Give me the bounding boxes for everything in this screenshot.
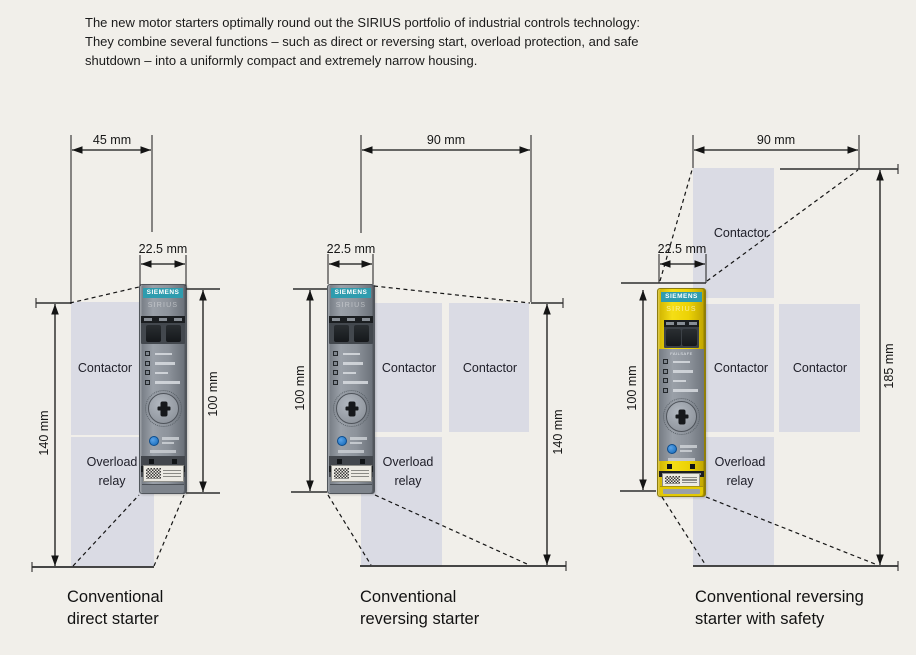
led-indicator: [663, 359, 668, 364]
reset-caption-mark: [680, 445, 697, 448]
terminal-connectors: [143, 325, 183, 342]
led-caption-mark: [673, 389, 698, 392]
caption-line1: Conventional reversing: [695, 586, 864, 608]
led-indicator: [333, 370, 338, 375]
product-label: [331, 465, 372, 482]
caption-line1: Conventional: [360, 586, 479, 608]
terminal-screw: [149, 459, 154, 464]
series-label: SIRIUS: [658, 306, 705, 313]
caption-line2: direct starter: [67, 608, 163, 630]
overload-label-line1: Overload: [383, 453, 434, 472]
led-indicator: [145, 351, 150, 356]
led-indicator: [333, 351, 338, 356]
intro-paragraph: The new motor starters optimally round o…: [85, 13, 640, 70]
datamatrix-code: [665, 476, 680, 484]
led-caption-mark: [343, 362, 363, 365]
overload-relay-label: Overload relay: [715, 453, 766, 491]
led-caption-mark: [155, 381, 180, 384]
caption-direct-starter: Conventional direct starter: [67, 586, 163, 630]
led-caption-mark: [155, 353, 172, 356]
reset-caption-mark: [350, 442, 362, 445]
contactor-label: Contactor: [714, 226, 768, 240]
contactor-label: Contactor: [382, 361, 436, 375]
bottom-flap: [660, 486, 703, 496]
overload-relay-label: Overload relay: [383, 453, 434, 491]
led-caption-mark: [673, 361, 690, 364]
dimension-outer-width: 90 mm: [757, 133, 795, 147]
led-caption-mark: [343, 381, 368, 384]
series-label: SIRIUS: [328, 302, 374, 309]
dimension-outer-height: 140 mm: [37, 410, 51, 455]
rotary-dial: [148, 393, 179, 424]
siemens-logo: SIEMENS: [143, 288, 183, 298]
contactor-label: Contactor: [714, 361, 768, 375]
label-text-marks: [682, 476, 697, 484]
led-indicator: [145, 380, 150, 385]
led-caption-mark: [155, 372, 168, 375]
siemens-logo: SIEMENS: [331, 288, 371, 298]
dimension-outer-height: 140 mm: [551, 409, 565, 454]
dimension-device-width: 22.5 mm: [327, 242, 376, 256]
dial-knob: [678, 409, 685, 424]
overload-relay-label: Overload relay: [87, 453, 138, 491]
terminal-screw: [667, 464, 672, 469]
motor-starter-device-safety: SIEMENSSIRIUSFAILSAFE: [657, 288, 706, 497]
led-indicator: [333, 361, 338, 366]
siemens-logo: SIEMENS: [661, 292, 702, 302]
caption-line2: starter with safety: [695, 608, 864, 630]
overload-label-line2: relay: [383, 472, 434, 491]
caption-line1: Conventional: [67, 586, 163, 608]
led-indicator: [145, 361, 150, 366]
reset-caption-mark: [350, 437, 367, 440]
terminal-connectors: [331, 325, 371, 342]
dimension-outer-width: 90 mm: [427, 133, 465, 147]
overload-label-line1: Overload: [87, 453, 138, 472]
failsafe-marking: FAILSAFE: [658, 351, 705, 356]
terminal-screw: [690, 464, 695, 469]
led-caption-mark: [673, 380, 686, 383]
status-leds: [663, 359, 701, 397]
led-caption-mark: [343, 372, 356, 375]
overload-label-line2: relay: [87, 472, 138, 491]
terminal-slots: [329, 316, 373, 323]
overload-label-line2: relay: [715, 472, 766, 491]
status-leds: [333, 351, 370, 389]
rating-text-mark: [338, 450, 364, 453]
rotary-dial: [666, 401, 697, 432]
reset-caption-mark: [680, 450, 692, 453]
dial-knob: [348, 401, 355, 416]
dimension-device-width: 22.5 mm: [139, 242, 188, 256]
dial-knob: [160, 401, 167, 416]
top-terminal-block: [664, 320, 699, 348]
dimension-device-width: 22.5 mm: [658, 242, 707, 256]
motor-starter-device-direct: SIEMENSSIRIUS: [139, 284, 187, 494]
led-caption-mark: [673, 370, 693, 373]
reset-caption-mark: [162, 442, 174, 445]
led-indicator: [145, 370, 150, 375]
rotary-dial: [336, 393, 367, 424]
brochure-diagram: The new motor starters optimally round o…: [0, 0, 916, 655]
led-indicator: [663, 378, 668, 383]
reset-button: [149, 436, 159, 446]
led-caption-mark: [155, 362, 175, 365]
terminal-connectors: [666, 329, 697, 346]
series-label: SIRIUS: [140, 302, 186, 309]
terminal-screw: [337, 459, 342, 464]
caption-line2: reversing starter: [360, 608, 479, 630]
datamatrix-code: [146, 468, 161, 479]
bottom-flap: [330, 484, 372, 493]
label-text-marks: [163, 468, 181, 479]
top-terminal-block: [141, 316, 185, 344]
reset-button: [337, 436, 347, 446]
top-terminal-block: [329, 316, 373, 344]
led-indicator: [333, 380, 338, 385]
product-label: [662, 473, 700, 487]
intro-line-3: shutdown – into a uniformly compact and …: [85, 51, 640, 70]
led-caption-mark: [343, 353, 360, 356]
rating-text-mark: [150, 450, 176, 453]
terminal-slots: [141, 316, 185, 323]
overload-label-line1: Overload: [715, 453, 766, 472]
motor-starter-device-reversing: SIEMENSSIRIUS: [327, 284, 375, 494]
bottom-flap: [142, 484, 184, 493]
caption-reversing-starter: Conventional reversing starter: [360, 586, 479, 630]
status-leds: [145, 351, 182, 389]
contactor-label: Contactor: [78, 361, 132, 375]
reset-caption-mark: [162, 437, 179, 440]
reset-button: [667, 444, 677, 454]
led-indicator: [663, 388, 668, 393]
terminal-slots: [664, 320, 699, 327]
contactor-label: Contactor: [793, 361, 847, 375]
dimension-device-height: 100 mm: [625, 365, 639, 410]
dimension-device-height: 100 mm: [293, 365, 307, 410]
caption-reversing-safety-starter: Conventional reversing starter with safe…: [695, 586, 864, 630]
terminal-screw: [172, 459, 177, 464]
intro-line-1: The new motor starters optimally round o…: [85, 13, 640, 32]
product-label: [143, 465, 184, 482]
dimension-outer-height: 185 mm: [882, 343, 896, 388]
led-indicator: [663, 369, 668, 374]
label-text-marks: [351, 468, 369, 479]
intro-line-2: They combine several functions – such as…: [85, 32, 640, 51]
dimension-device-height: 100 mm: [206, 371, 220, 416]
datamatrix-code: [334, 468, 349, 479]
terminal-screw: [360, 459, 365, 464]
dimension-outer-width: 45 mm: [93, 133, 131, 147]
contactor-label: Contactor: [463, 361, 517, 375]
